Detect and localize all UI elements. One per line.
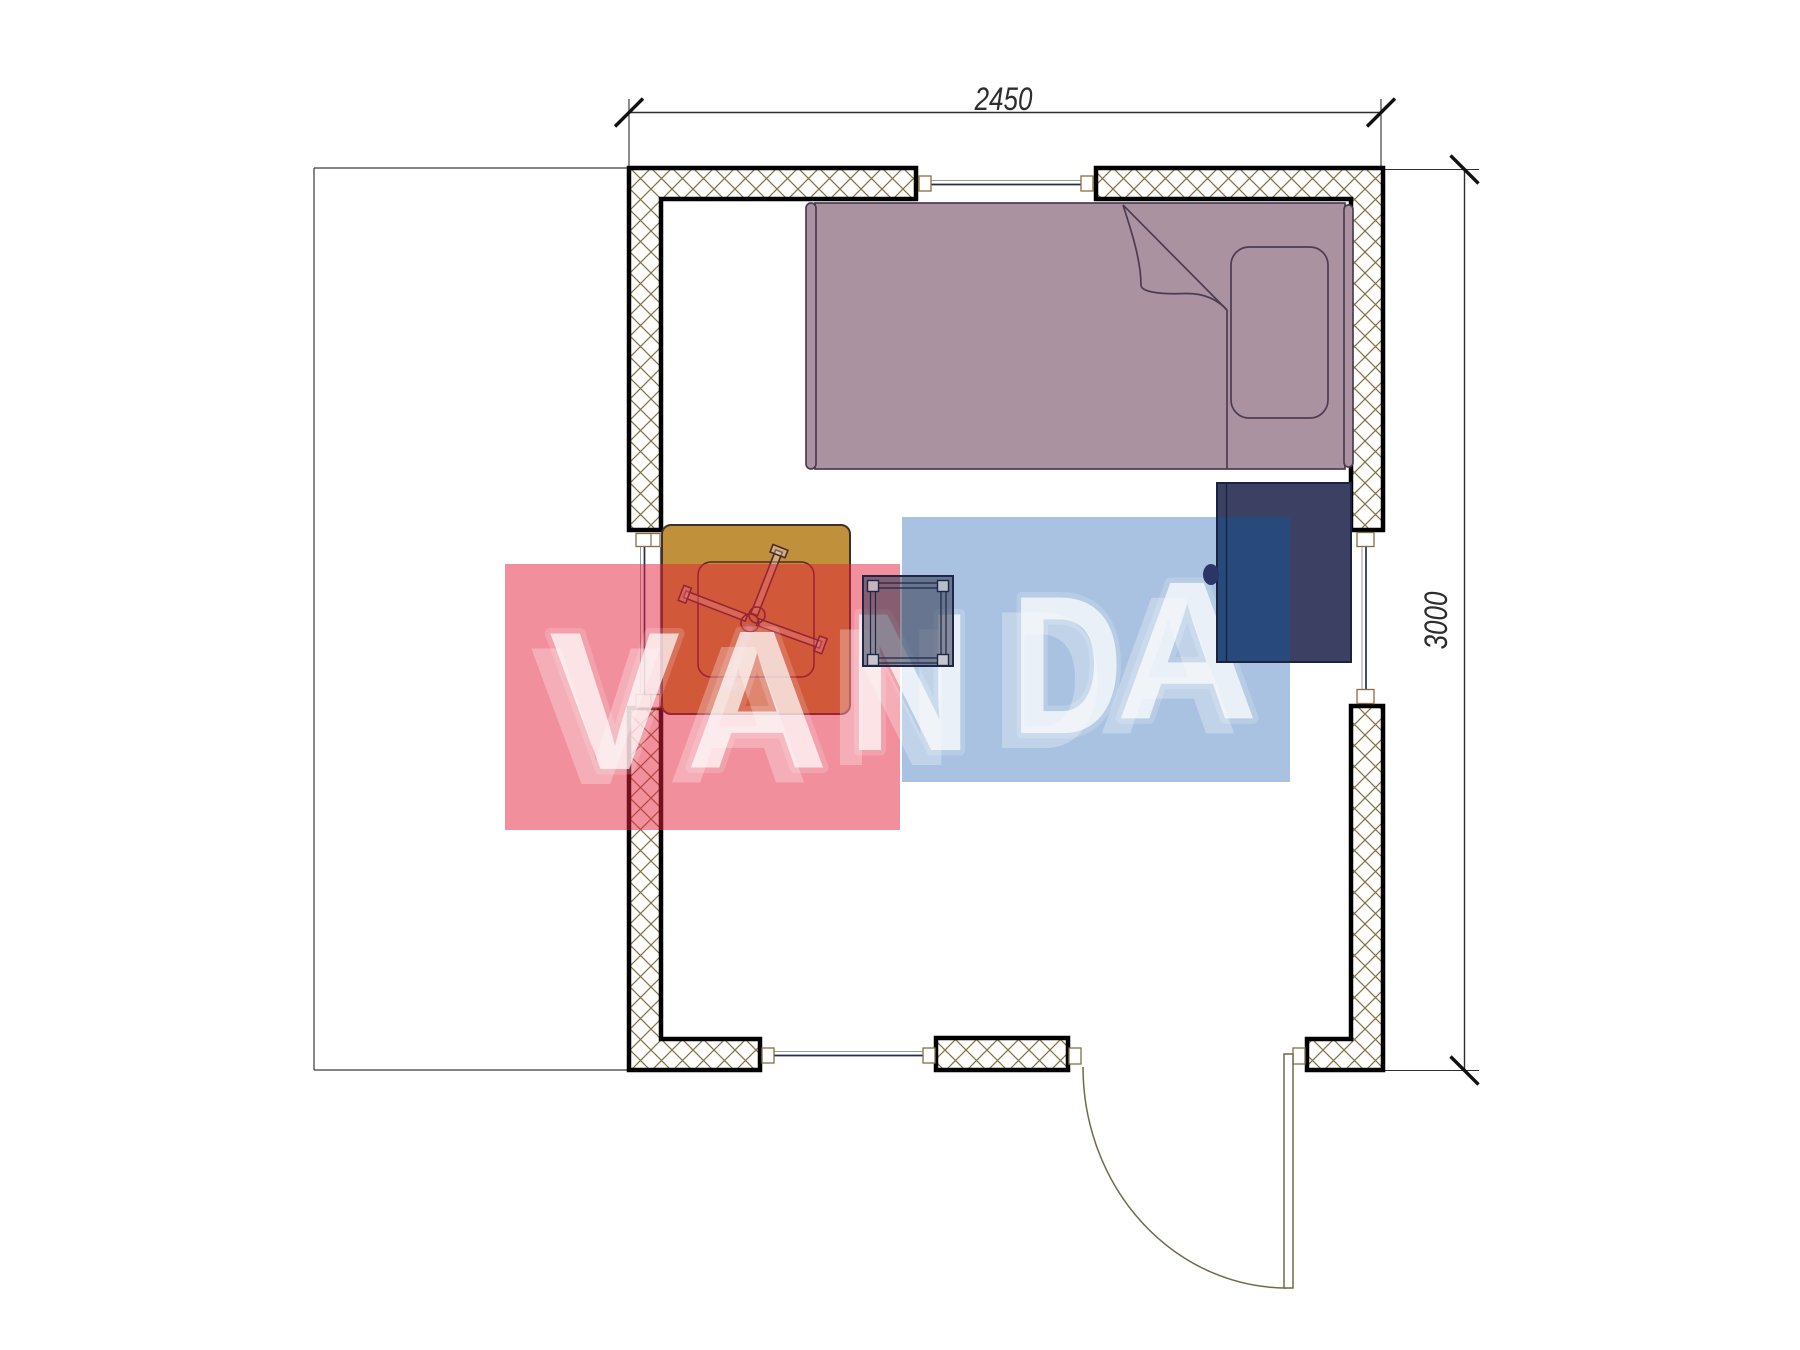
svg-text:2450: 2450: [974, 81, 1033, 117]
svg-text:D: D: [1011, 554, 1123, 775]
svg-text:V: V: [549, 591, 680, 811]
svg-text:3000: 3000: [1418, 591, 1454, 649]
svg-text:A: A: [686, 590, 828, 810]
